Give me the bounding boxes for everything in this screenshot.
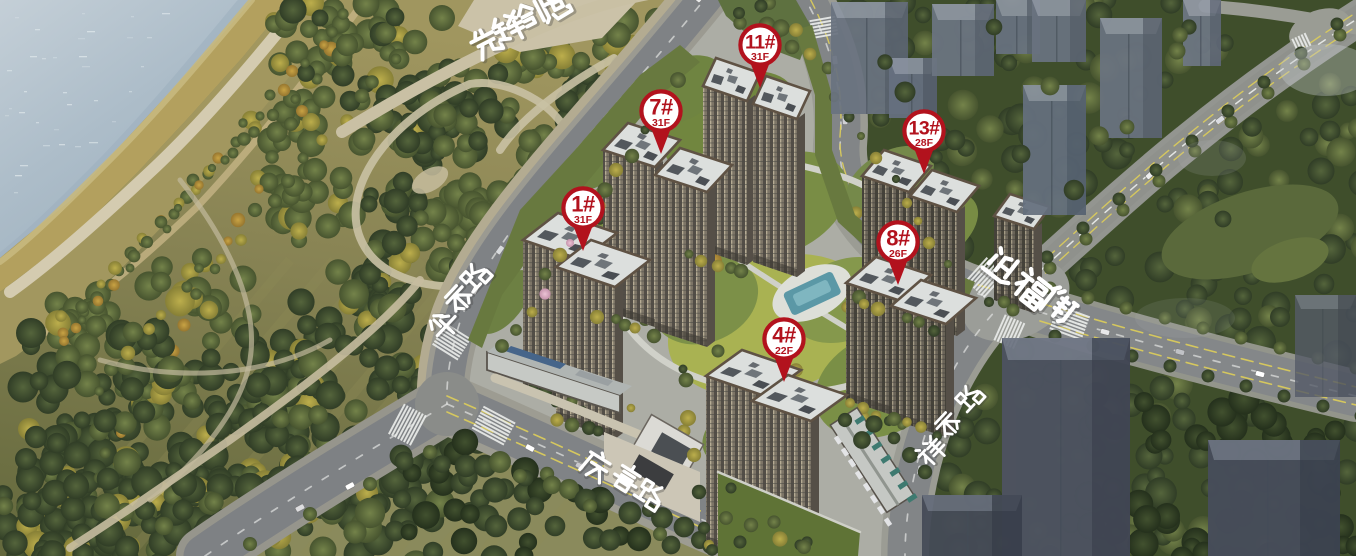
svg-text:31F: 31F <box>751 51 770 63</box>
svg-text:7#: 7# <box>649 95 673 120</box>
svg-text:26F: 26F <box>889 248 908 260</box>
svg-text:28F: 28F <box>915 137 934 149</box>
svg-text:22F: 22F <box>775 345 794 357</box>
svg-text:8#: 8# <box>886 226 910 251</box>
svg-text:31F: 31F <box>574 214 593 226</box>
svg-text:31F: 31F <box>652 117 671 129</box>
svg-text:4#: 4# <box>772 323 796 348</box>
svg-text:1#: 1# <box>571 192 595 217</box>
